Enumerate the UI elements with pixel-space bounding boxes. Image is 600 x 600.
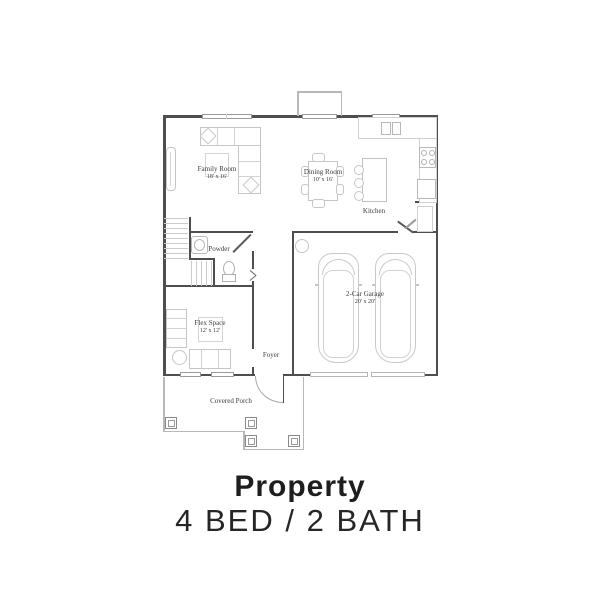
window-bay xyxy=(302,114,337,119)
kitchen-sink xyxy=(381,122,391,135)
car-cabin xyxy=(323,270,354,358)
porch-bottom-line-1 xyxy=(163,431,244,433)
room-name: Flex Space xyxy=(195,319,226,328)
room-name: Foyer xyxy=(263,351,279,360)
wall-powder-top xyxy=(189,231,253,233)
front-door-leaf xyxy=(283,376,285,403)
water-heater xyxy=(295,239,309,253)
room-dims: 18' x 16' xyxy=(198,174,237,182)
kitchen-sink xyxy=(392,122,401,135)
staircase-lower-run xyxy=(191,261,212,286)
shelf-line xyxy=(167,338,186,339)
kitchen-island xyxy=(362,158,387,202)
property-title: Property xyxy=(0,470,600,504)
porch-bottom-line-2 xyxy=(243,449,304,451)
car-mirror xyxy=(372,284,376,286)
wall-understair-h xyxy=(189,258,214,260)
island-stool xyxy=(354,178,364,188)
wall-flex-right-upper xyxy=(252,251,254,349)
sofa-cushion-line xyxy=(234,128,235,145)
room-name: Powder xyxy=(208,245,229,254)
stove-burner xyxy=(429,159,435,165)
stove-burner xyxy=(421,150,427,156)
sofa-cushion-line xyxy=(217,128,218,145)
porch-right-line xyxy=(303,377,305,450)
room-name: Kitchen xyxy=(363,207,385,216)
car-cabin xyxy=(380,270,411,358)
window-flex-2 xyxy=(211,372,234,377)
car-mirror xyxy=(358,284,362,286)
toilet-tank xyxy=(222,274,236,282)
powder-door-leaf xyxy=(233,234,252,253)
room-name: Covered Porch xyxy=(210,397,252,406)
room-label-powder: Powder xyxy=(208,245,229,254)
flex-sofa xyxy=(189,349,231,369)
window-mullion xyxy=(226,114,227,119)
room-label-kitchen: Kitchen xyxy=(363,207,385,216)
staircase-upper-run xyxy=(164,218,188,260)
shelf-line xyxy=(167,318,186,319)
sofa-cushion-line xyxy=(201,350,202,368)
bed-bath-subtitle: 4 BED / 2 BATH xyxy=(0,503,600,539)
garage-door-1 xyxy=(310,372,368,377)
wall-garage-top-left xyxy=(292,231,398,233)
shelf-line xyxy=(167,328,186,329)
room-name: 2-Car Garage xyxy=(346,290,384,299)
tv-console xyxy=(166,147,176,191)
porch-column xyxy=(245,417,257,429)
dining-chair xyxy=(336,184,344,195)
refrigerator xyxy=(417,179,436,199)
room-label-porch: Covered Porch xyxy=(210,397,252,406)
wall-garage-left xyxy=(292,231,294,376)
room-label-foyer: Foyer xyxy=(263,351,279,360)
room-name: Dining Room xyxy=(304,168,342,177)
room-label-family: Family Room 18' x 16' xyxy=(198,165,237,181)
porch-column xyxy=(288,435,300,447)
wall-flex-right-lower xyxy=(252,367,254,376)
wall-bottom-mid-segment xyxy=(283,374,310,377)
car-mirror xyxy=(415,284,419,286)
powder-sink-basin xyxy=(194,239,205,251)
car-mirror xyxy=(315,284,319,286)
room-dims: 20' x 20' xyxy=(346,299,384,307)
window-flex-1 xyxy=(180,372,201,377)
island-stool xyxy=(354,165,364,175)
floorplan-page: Family Room 18' x 16' Dining Room 10' x … xyxy=(0,0,600,600)
room-dims: 12' x 12' xyxy=(195,328,226,336)
room-name: Family Room xyxy=(198,165,237,174)
wall-bottom-right-segment xyxy=(425,374,438,377)
sofa-cushion-line xyxy=(218,350,219,368)
window-family-room xyxy=(202,114,252,119)
room-label-flex: Flex Space 12' x 12' xyxy=(195,319,226,335)
dining-chair xyxy=(312,199,325,208)
bay-right-line xyxy=(341,91,343,116)
dining-chair xyxy=(301,184,309,195)
garage-door-2 xyxy=(371,372,425,377)
room-dims: 10' x 16' xyxy=(304,177,342,185)
bay-left-line xyxy=(297,91,299,116)
pantry-door-leaf xyxy=(405,219,417,229)
pantry-closet xyxy=(417,206,433,232)
stove-burner xyxy=(429,150,435,156)
porch-column xyxy=(245,435,257,447)
flex-side-table xyxy=(172,350,187,365)
porch-column xyxy=(165,417,177,429)
island-stool xyxy=(354,191,364,201)
front-door-arc xyxy=(255,376,283,403)
wall-understair-v xyxy=(213,258,215,287)
room-label-garage: 2-Car Garage 20' x 20' xyxy=(346,290,384,306)
stove-burner xyxy=(421,159,427,165)
tv-screen-line xyxy=(170,152,171,186)
wall-bottom-left-segment xyxy=(163,374,255,377)
room-label-dining: Dining Room 10' x 16' xyxy=(304,168,342,184)
bay-top-line xyxy=(297,91,342,93)
sofa-cushion-line xyxy=(239,161,260,162)
dining-chair xyxy=(312,153,325,162)
